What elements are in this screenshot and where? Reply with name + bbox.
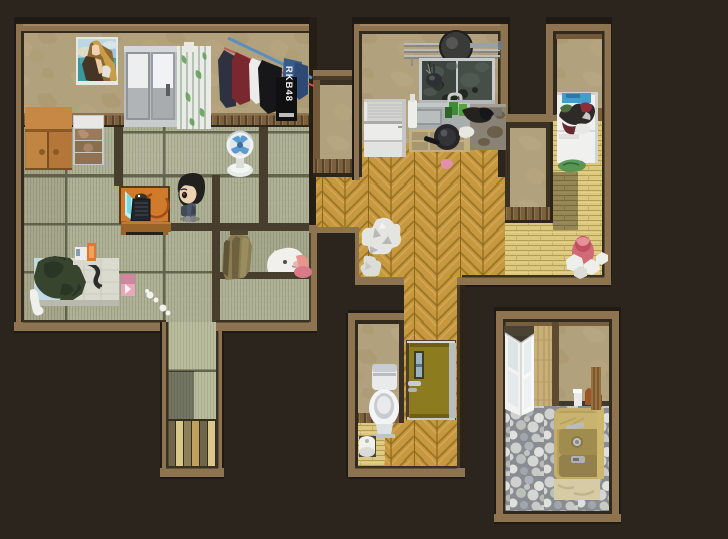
svg-text:RKB48: RKB48 (283, 66, 294, 102)
